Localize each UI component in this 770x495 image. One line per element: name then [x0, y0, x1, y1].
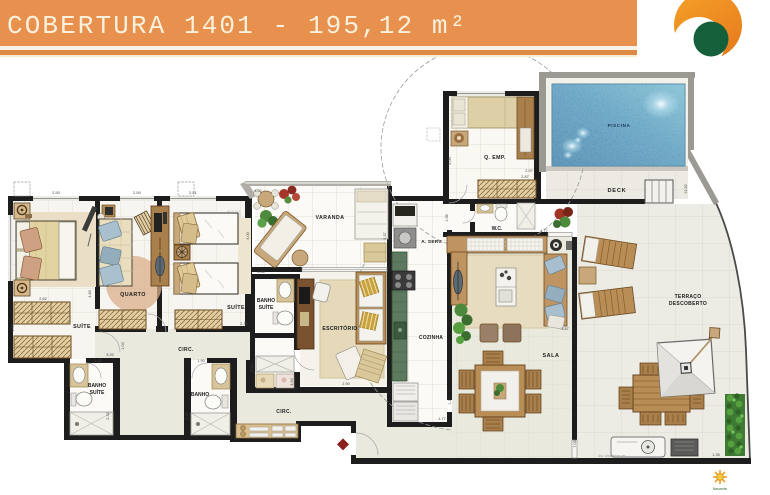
svg-text:2.51: 2.51: [189, 190, 198, 195]
svg-text:1.04: 1.04: [121, 342, 125, 349]
svg-text:SUÍTE: SUÍTE: [259, 303, 274, 311]
svg-text:1.77: 1.77: [438, 417, 445, 421]
svg-text:2.12: 2.12: [185, 412, 189, 419]
svg-text:COBERTURA 1401 - 195,12 m²: COBERTURA 1401 - 195,12 m²: [7, 11, 467, 41]
svg-text:4.77: 4.77: [540, 229, 547, 233]
svg-text:SALA: SALA: [542, 353, 559, 359]
svg-text:3.87: 3.87: [561, 327, 568, 331]
svg-text:4.00: 4.00: [448, 157, 452, 164]
svg-text:3.20: 3.20: [106, 353, 113, 357]
svg-text:Nascente: Nascente: [713, 487, 727, 491]
svg-text:SUÍTE: SUÍTE: [227, 303, 245, 311]
svg-text:SUÍTE: SUÍTE: [73, 322, 91, 330]
svg-text:3.54: 3.54: [290, 378, 294, 385]
svg-text:1.55: 1.55: [445, 214, 449, 221]
svg-text:DECK: DECK: [607, 188, 626, 194]
svg-text:1.17: 1.17: [448, 397, 452, 404]
svg-text:7.05: 7.05: [573, 440, 577, 447]
svg-text:2.32: 2.32: [106, 412, 110, 419]
svg-text:ESCRITÓRIO: ESCRITÓRIO: [322, 324, 357, 332]
svg-text:Ass. arquitetura res.: Ass. arquitetura res.: [597, 454, 627, 458]
svg-text:1.58: 1.58: [11, 324, 15, 331]
svg-text:W.C.: W.C.: [492, 226, 503, 232]
svg-text:1.35: 1.35: [712, 453, 719, 457]
svg-text:2.37: 2.37: [383, 232, 387, 239]
svg-text:BANHO: BANHO: [191, 392, 209, 398]
svg-text:1.30: 1.30: [257, 270, 264, 274]
svg-text:A. SERV.: A. SERV.: [421, 239, 443, 245]
svg-text:3.54: 3.54: [250, 364, 254, 371]
svg-text:TERRAÇO: TERRAÇO: [675, 294, 702, 300]
svg-text:2.87: 2.87: [521, 175, 528, 179]
svg-text:2.62: 2.62: [39, 297, 46, 301]
svg-text:4.60: 4.60: [88, 290, 92, 297]
svg-text:BANHO: BANHO: [88, 383, 106, 389]
svg-text:PISCINA: PISCINA: [608, 123, 631, 128]
svg-text:1.65: 1.65: [94, 359, 101, 363]
svg-text:1.90: 1.90: [197, 359, 204, 363]
svg-text:CIRC.: CIRC.: [276, 409, 292, 415]
svg-text:2.90: 2.90: [342, 382, 349, 386]
svg-text:4.00: 4.00: [246, 232, 250, 239]
svg-text:2.50: 2.50: [133, 190, 142, 195]
svg-text:VARANDA: VARANDA: [315, 215, 344, 221]
svg-text:2.97: 2.97: [525, 169, 532, 173]
svg-text:BANHO: BANHO: [257, 298, 275, 304]
svg-text:COZINHA: COZINHA: [419, 335, 443, 341]
svg-text:12.92: 12.92: [684, 184, 688, 194]
svg-text:4.02: 4.02: [254, 189, 261, 193]
svg-text:2.30: 2.30: [240, 322, 247, 326]
svg-text:Q. EMP.: Q. EMP.: [484, 155, 506, 161]
svg-text:QUARTO: QUARTO: [120, 292, 146, 298]
svg-text:DESCOBERTO: DESCOBERTO: [669, 301, 707, 307]
svg-text:2.50: 2.50: [52, 190, 61, 195]
svg-text:SUÍTE: SUÍTE: [90, 388, 105, 396]
svg-text:CIRC.: CIRC.: [178, 347, 194, 353]
